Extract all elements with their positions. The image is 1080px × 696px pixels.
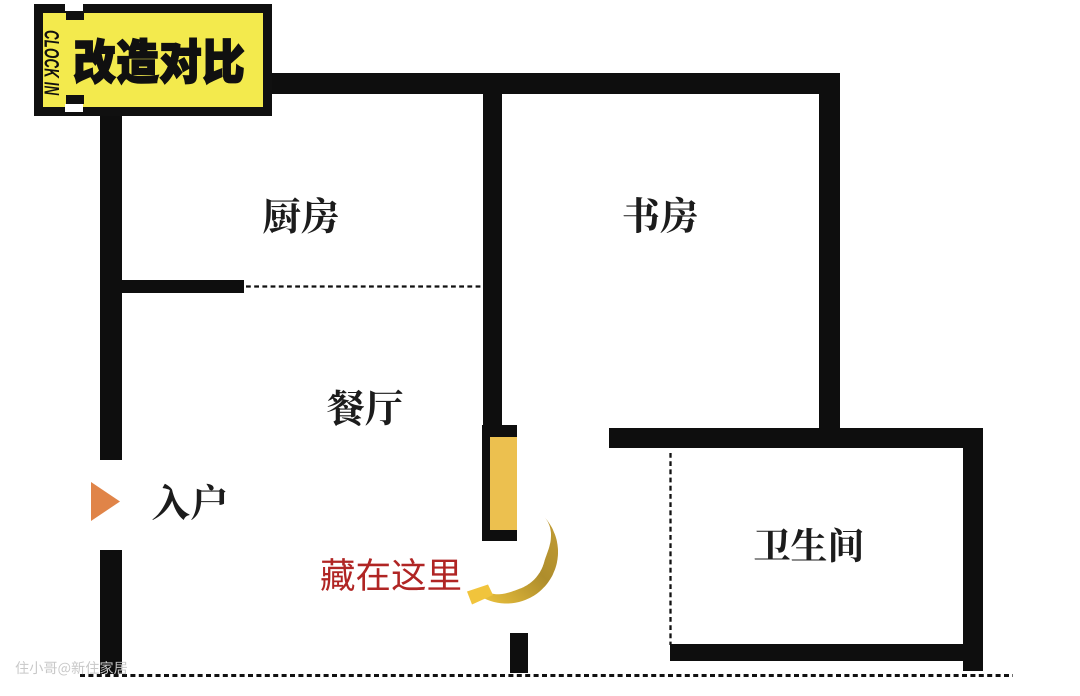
- svg-text:CLOCK IN: CLOCK IN: [40, 30, 64, 96]
